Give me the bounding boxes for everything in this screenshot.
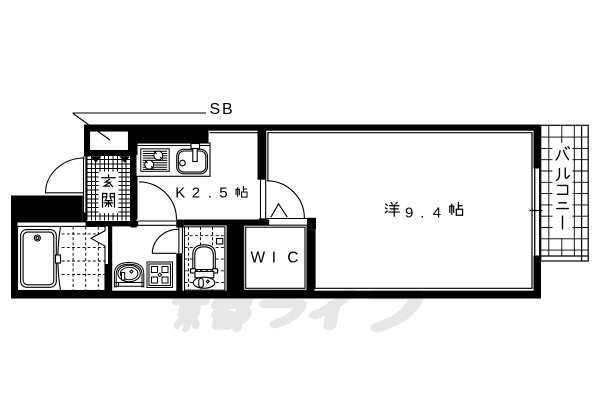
svg-text:4: 4	[433, 204, 441, 221]
svg-text:K: K	[175, 184, 185, 201]
svg-text:I: I	[272, 250, 276, 267]
svg-text:.: .	[420, 204, 424, 221]
svg-text:.: .	[208, 184, 212, 201]
svg-text:2: 2	[192, 184, 200, 201]
svg-text:5: 5	[219, 184, 227, 201]
svg-text:C: C	[287, 250, 298, 267]
svg-text:B: B	[222, 101, 233, 118]
svg-text:W: W	[251, 250, 266, 267]
svg-text:9: 9	[405, 204, 413, 221]
svg-text:S: S	[210, 101, 221, 118]
